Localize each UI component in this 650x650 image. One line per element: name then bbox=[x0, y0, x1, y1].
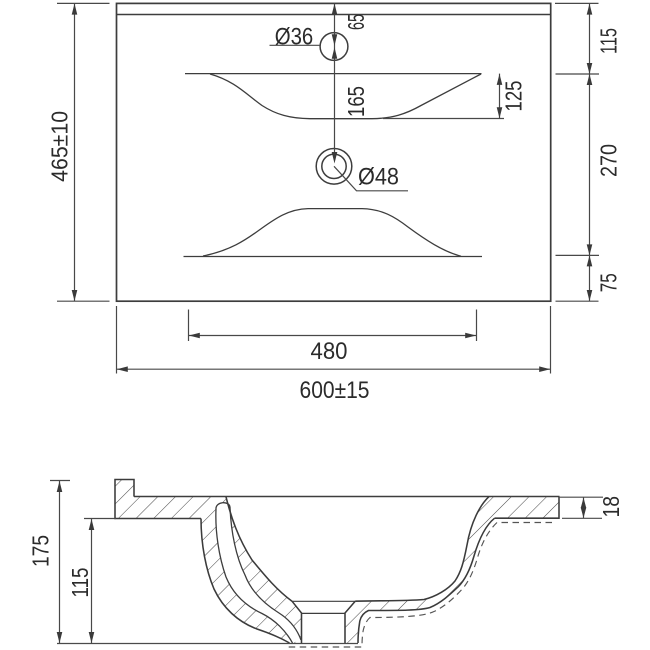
svg-text:600±15: 600±15 bbox=[300, 377, 370, 404]
svg-text:65: 65 bbox=[343, 14, 369, 30]
svg-text:465±10: 465±10 bbox=[46, 111, 72, 182]
svg-text:175: 175 bbox=[28, 535, 54, 567]
svg-text:Ø48: Ø48 bbox=[358, 163, 399, 190]
svg-text:Ø36: Ø36 bbox=[275, 23, 314, 50]
svg-text:18: 18 bbox=[598, 496, 624, 518]
svg-text:115: 115 bbox=[67, 568, 93, 598]
svg-text:480: 480 bbox=[311, 338, 348, 365]
svg-text:125: 125 bbox=[501, 81, 527, 112]
svg-text:75: 75 bbox=[595, 273, 621, 292]
svg-text:270: 270 bbox=[595, 144, 621, 177]
svg-text:115: 115 bbox=[595, 28, 621, 54]
svg-text:165: 165 bbox=[343, 86, 369, 117]
